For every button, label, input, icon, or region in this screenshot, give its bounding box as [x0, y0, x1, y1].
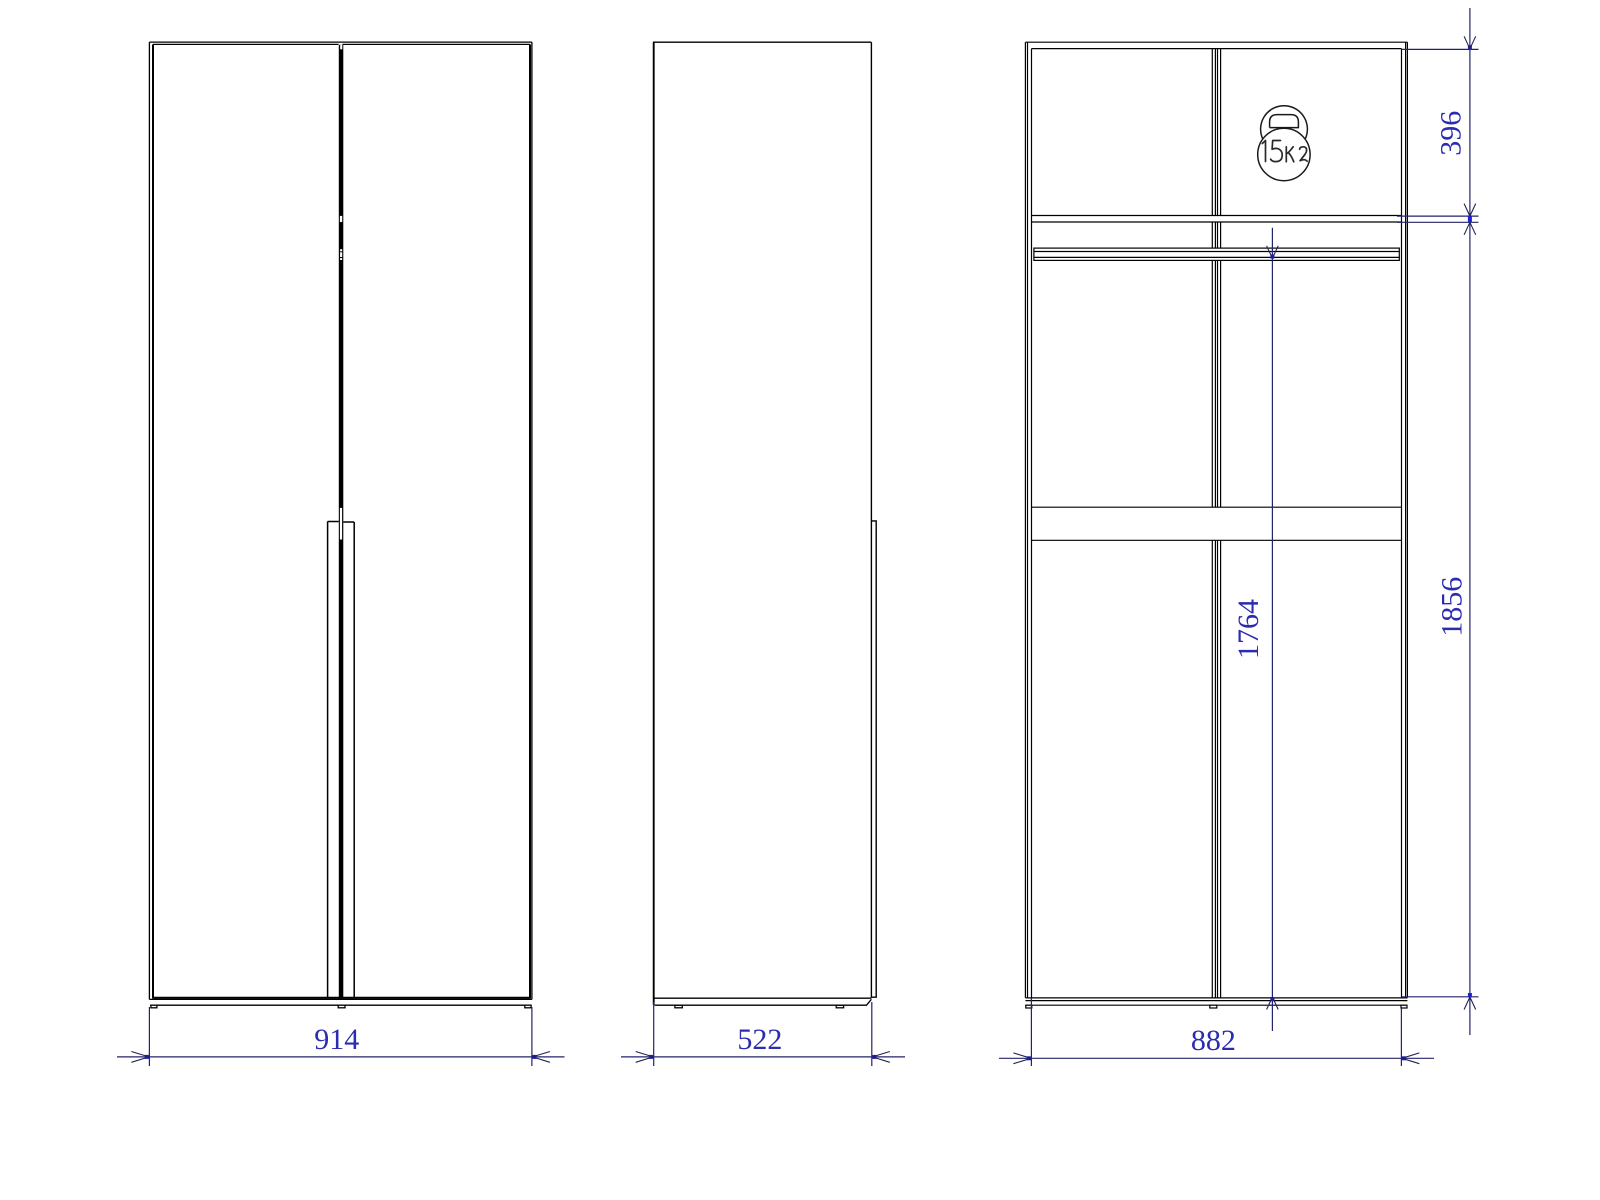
svg-text:1764: 1764 [1232, 599, 1265, 659]
svg-text:396: 396 [1435, 111, 1468, 156]
svg-text:914: 914 [314, 1023, 359, 1056]
svg-text:1856: 1856 [1435, 577, 1468, 637]
svg-text:882: 882 [1191, 1024, 1236, 1057]
svg-text:522: 522 [737, 1023, 782, 1056]
